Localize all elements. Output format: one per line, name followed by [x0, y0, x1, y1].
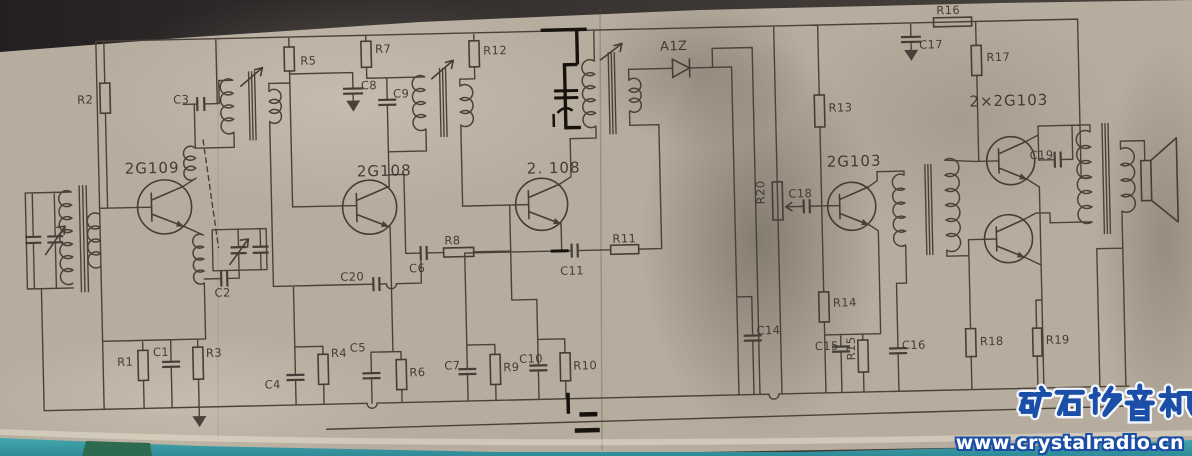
label-r6: R6: [409, 365, 425, 379]
label-r2: R2: [77, 92, 93, 106]
label-r17: R17: [986, 50, 1010, 65]
label-c11: C11: [560, 263, 584, 278]
label-c7: C7: [444, 358, 460, 372]
label-r19: R19: [1046, 332, 1070, 347]
label-diode: A1Z: [660, 39, 688, 55]
label-r15: R15: [844, 336, 859, 360]
label-c17: C17: [919, 37, 943, 52]
label-c19: C19: [1029, 148, 1053, 163]
label-r11: R11: [612, 231, 636, 246]
label-r10: R10: [573, 358, 597, 373]
label-r1: R1: [117, 355, 133, 369]
label-c4: C4: [264, 377, 280, 391]
photo-of-schematic: 2G109 C2 C3: [0, 0, 1192, 456]
label-c2: C2: [214, 285, 230, 299]
label-c20: C20: [340, 269, 364, 284]
label-q5: 2×2G103: [969, 91, 1048, 111]
table-strip-patch: [82, 441, 152, 456]
label-c3: C3: [173, 92, 189, 106]
label-r12: R12: [483, 43, 507, 58]
label-r4: R4: [331, 346, 347, 360]
label-c18: C18: [788, 186, 812, 201]
label-c14: C14: [756, 323, 780, 338]
label-c6: C6: [409, 261, 425, 275]
label-r9: R9: [503, 360, 519, 374]
schematic-photo-svg: 2G109 C2 C3: [0, 0, 1192, 456]
label-q4: 2G103: [827, 152, 882, 171]
label-c9: C9: [393, 86, 409, 100]
label-q1: 2G109: [125, 159, 180, 178]
label-r14: R14: [833, 295, 857, 310]
label-c15: C15: [815, 339, 839, 354]
label-c10: C10: [519, 351, 543, 366]
label-r20: R20: [753, 180, 768, 204]
label-r5: R5: [300, 53, 316, 67]
label-r13: R13: [828, 100, 852, 115]
label-c16: C16: [902, 338, 926, 353]
label-r16: R16: [936, 3, 960, 18]
label-c1: C1: [153, 345, 169, 359]
label-q2: 2G108: [357, 161, 412, 180]
label-r7: R7: [375, 42, 391, 56]
watermark-url: www.crystalradio.cn: [956, 432, 1184, 454]
label-c8: C8: [361, 78, 377, 92]
label-c5: C5: [350, 340, 366, 354]
label-r18: R18: [980, 334, 1004, 349]
label-q3: 2. 108: [527, 158, 581, 177]
label-r8: R8: [444, 233, 460, 247]
label-r3: R3: [206, 346, 222, 360]
